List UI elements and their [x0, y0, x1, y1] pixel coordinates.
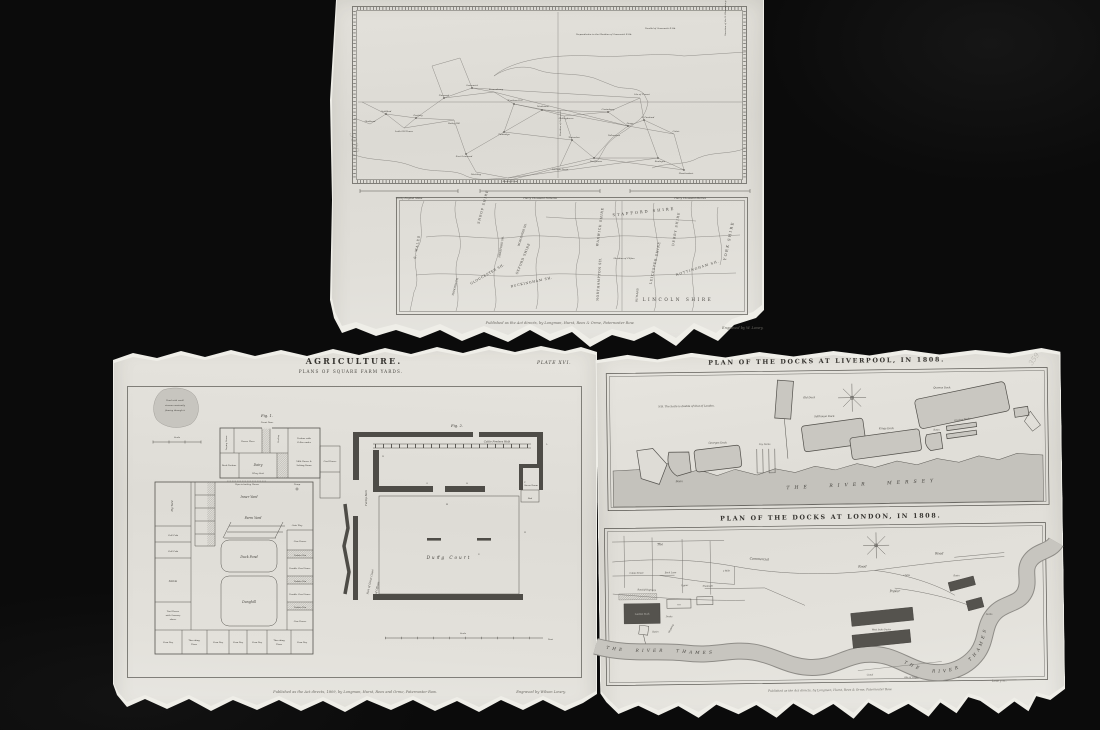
small-dock-shape — [966, 597, 984, 611]
agriculture-sheet: AGRICULTURE. PLANS OF SQUARE FARM YARDS.… — [113, 344, 597, 716]
graving-dock-shape — [946, 430, 976, 439]
place-label: Calais — [673, 130, 681, 133]
corn-bay-label: Corn Bay — [297, 641, 308, 644]
street-label-commercial: Commercial — [750, 556, 770, 561]
west-india-label: West India Docks — [872, 628, 892, 631]
engraver-credit: Engraved by W. Lowry. — [722, 326, 764, 330]
letter-key: G — [426, 482, 428, 485]
street-label-road: Road — [934, 551, 943, 555]
county-map-panel: SHROP SHIRE STAFFORD SHIRE DERBY SHIRE N… — [396, 197, 748, 315]
dry-docks-shape — [757, 449, 775, 473]
fig2-feeding-rails — [373, 444, 531, 448]
place-label: Fairlight Down — [551, 168, 569, 171]
publisher-imprint: Published as the Act directs, by Longman… — [486, 321, 635, 325]
front-door-label: Front Door — [260, 421, 274, 424]
place-label: Canterbury — [602, 108, 615, 111]
great-court-wall — [344, 504, 349, 594]
scale-note: N.B. The Scale is double of that of Lond… — [657, 404, 715, 409]
place-label: Botley Hill — [447, 122, 460, 125]
basin-label: Basin — [952, 574, 960, 577]
street-label-ratcliff: Ratcliff Highway — [636, 588, 656, 591]
parallel-note: Parallel of Greenwich R.Ob. — [644, 27, 676, 30]
pipe-label: Pipe to boiling House — [234, 483, 260, 486]
double-cow-label: Double Cow House — [289, 567, 311, 570]
canal-label: Canal — [867, 673, 874, 676]
planned-dock-outline — [697, 597, 713, 605]
great-court-label: of Offices — [374, 581, 381, 595]
county-label: WORCESTER SH. — [516, 223, 527, 247]
pump-label: Pump — [293, 483, 301, 486]
dung-court-outline — [379, 496, 519, 594]
corn-bay-label: Corn Bay — [233, 641, 244, 644]
perpendicular-note: Perpendicular to the Meridian of Greenwi… — [575, 33, 632, 36]
salthouse-label: Salthouse Dock — [814, 414, 835, 418]
pond-note-line: stream constantly — [165, 404, 186, 407]
basin-label: Basin — [651, 630, 659, 633]
place-label: Hollingbourn — [558, 117, 574, 120]
duck-pond-label: Duck Pond — [239, 555, 257, 559]
trig-place-labels: Hindhead Guildford Leith Hill Tower Dork… — [364, 84, 694, 183]
great-court-label: Part of Great Court — [365, 568, 375, 596]
triangulation-network — [354, 58, 684, 178]
small-dock-shape — [1014, 406, 1029, 417]
room-label: Milk House & — [296, 460, 311, 463]
docks-label: Docks — [665, 615, 674, 618]
county-label: MONMOUTH — [451, 277, 460, 296]
place-label: Leith Hill Tower — [394, 130, 414, 133]
west-india-dock-shape — [851, 607, 914, 626]
place-label: Dover — [626, 122, 635, 125]
plate-subtitle: PLANS OF SQUARE FARM YARDS. — [299, 369, 403, 374]
coastline — [352, 52, 746, 180]
basin-channel — [643, 635, 645, 644]
letter-key: L — [546, 443, 548, 446]
room-label: Cellar under — [297, 441, 312, 444]
room-label: Parlour with — [297, 437, 311, 440]
street-label-the: The — [657, 542, 663, 546]
county-label: WARWICK SHIRE — [595, 207, 604, 247]
front-door-gap — [262, 427, 272, 428]
river-thames-water — [594, 542, 1058, 678]
engraver-credit: Engraved by Wilson Lowry. — [516, 690, 566, 694]
place-label: Dungeness — [589, 160, 603, 163]
court-post — [477, 538, 491, 541]
old-dock-shape — [775, 380, 794, 419]
tool-house-label: above — [170, 618, 177, 621]
fig2-scale-label: Scale — [460, 632, 467, 635]
graving-dock-shape — [946, 422, 976, 431]
feeders-walk-label: Cattle Feeders Walk — [484, 440, 511, 444]
basin-label: Basin — [932, 428, 940, 431]
threshing-label: Floor — [191, 643, 198, 646]
place-label: Tenterden — [568, 136, 580, 139]
fig1-scale-label: Scale — [174, 436, 181, 439]
fig1-scale-bar — [153, 441, 201, 444]
mile-mark: a Mile — [723, 569, 731, 572]
cow-house-label: Cow House — [294, 620, 307, 623]
threshing-label: Floor — [276, 643, 283, 646]
room-label: Back Parlour — [222, 464, 237, 467]
docks-label: Docks — [985, 613, 994, 616]
bed-label: Bed — [527, 497, 533, 500]
gate-way-label: Gate Way — [292, 524, 303, 527]
fig2-feet-label: Feet — [547, 638, 553, 641]
county-label: HEREFORD SH. — [497, 236, 505, 258]
mile-mark: a Mile — [903, 574, 911, 577]
compass-star — [838, 383, 866, 411]
street-label-road: Road — [857, 564, 866, 568]
basin-outline — [639, 625, 649, 635]
publisher-imprint: Published as the Act directs, 1809, by L… — [273, 690, 437, 694]
georges-dock-shape — [694, 445, 742, 472]
street-label-upper: Upper — [681, 584, 689, 587]
place-label: Tunbridge — [498, 133, 510, 136]
triangulation-map-panel: Parallel of Greenwich R.Ob. Perpendicula… — [352, 6, 747, 184]
place-label: Hindhead — [364, 120, 376, 123]
county-label: YORK SHIRE — [723, 221, 735, 262]
place-label: Guildford — [381, 110, 392, 113]
dunghill-label: Dunghill — [241, 600, 256, 604]
place-label: Dorking — [413, 114, 424, 117]
stable-label: Stable — [169, 579, 178, 583]
scale-bar-lines — [360, 189, 750, 193]
kings-dock-label: Kings Dock — [878, 426, 894, 430]
engraver-credit: Lowry sc. — [992, 679, 1007, 683]
street-label-backlane: Back Lane — [664, 571, 677, 574]
place-label: Maidstone — [536, 105, 549, 108]
liverpool-docks-panel: N.B. The Scale is double of that of Lond… — [606, 367, 1050, 511]
place-label: Ditchling — [470, 173, 482, 176]
calf-crib-label: Calf Crib — [168, 534, 179, 537]
county-label: LINCOLN SHIRE — [643, 297, 714, 302]
turnip-barn-label: Turnip Barn — [364, 490, 368, 506]
place-label: Severndroog — [489, 88, 504, 91]
compass-star — [863, 532, 889, 558]
county-boundaries — [410, 201, 740, 311]
county-label: GLOUCESTER SH. — [470, 263, 506, 286]
old-dock-channel — [784, 419, 788, 459]
docks-sheet: 359 PLAN OF THE DOCKS AT LIVERPOOL, IN 1… — [595, 345, 1065, 726]
compass-rays — [863, 532, 889, 558]
survey-sheet: 5129 Parallel of Greenwich R.Ob. Perpend… — [330, 0, 764, 350]
isle-of-dogs-label: Isle of Dogs — [903, 676, 918, 679]
bed-box — [521, 490, 539, 502]
farm-yard-label: Farm Yard — [244, 516, 262, 520]
place-label: Montlambert — [678, 172, 694, 175]
georges-dock-label: Georges Dock — [708, 440, 727, 444]
stairs-hatch — [277, 453, 287, 477]
place-label: Wrotham Hill — [508, 99, 523, 102]
place-label: Isle of Thanet — [633, 93, 649, 96]
threshing-label: Threshing — [188, 639, 200, 642]
tool-house-label: with Granary — [166, 614, 181, 617]
map-inner-border — [357, 11, 743, 180]
fodder-bin-label: Fodder Bin — [294, 554, 307, 557]
county-label: STAFFORD SHIRE — [612, 207, 675, 218]
room-label: Poultry — [277, 434, 280, 443]
plate-title: AGRICULTURE. — [306, 356, 403, 366]
london-docks-panel: London Dock a.a Docks Basin West India D… — [604, 522, 1048, 686]
calf-crib-label: Calf Crib — [168, 550, 179, 553]
place-label: Folkestone — [607, 134, 621, 137]
pig-yard-label: Pig Yard — [170, 500, 174, 512]
west-india-dock-shape — [852, 629, 911, 648]
fig2-label: Fig. 2. — [450, 424, 463, 428]
letter-key: B — [382, 455, 384, 458]
threshing-label: Threshing — [273, 639, 285, 642]
county-label: LEICESTER SHIRE — [649, 241, 662, 284]
county-label: OXFORD SHIRE — [515, 242, 531, 275]
court-post — [427, 538, 441, 541]
place-label: S. Foreland — [642, 116, 655, 119]
county-label: DERBY SHIRE — [671, 211, 681, 246]
pond-note-line: Pond with small — [165, 399, 184, 402]
county-meridian-note: Meridian of Clifton — [612, 257, 635, 260]
meridian-label: Meridian of Greenwich — [559, 110, 562, 137]
map-outer-border — [353, 7, 747, 184]
dung-court-label: Dung Court — [426, 555, 472, 560]
fodder-bin-label: Fodder Bin — [294, 580, 307, 583]
room-label: Dairy — [253, 463, 263, 467]
corn-bay-label: Corn Bay — [163, 641, 174, 644]
compass-rays — [838, 383, 866, 411]
room-label: Whey Sink — [252, 472, 264, 475]
street-label-cable: Cable Street — [629, 572, 643, 575]
pump-symbol — [296, 488, 298, 490]
place-label: Norwood — [438, 94, 450, 97]
inner-yard-label: Inner Yard — [239, 495, 257, 499]
old-dock-label: Old Dock — [803, 395, 816, 399]
farm-plans-panel: Pond with small stream constantly flowin… — [127, 386, 582, 678]
poplar-label: Poplar — [889, 589, 901, 593]
county-label: NORTHAMPTON SH. — [595, 257, 602, 301]
place-label: Greenwich — [466, 84, 479, 87]
letter-key: O — [466, 482, 468, 485]
county-labels: SHROP SHIRE STAFFORD SHIRE DERBY SHIRE N… — [413, 189, 735, 302]
room-label: Coal House — [324, 460, 337, 463]
corn-bay-label: Corn Bay — [213, 641, 224, 644]
room-label: Salting Room — [297, 464, 313, 467]
small-dock-shape — [948, 576, 975, 591]
queens-dock-shape — [914, 381, 1010, 429]
letter-key: E — [478, 553, 480, 556]
letter-key: M — [446, 503, 449, 506]
dry-docks-label: Dry Docks — [758, 443, 771, 446]
queens-dock-label: Queens Dock — [933, 385, 951, 389]
county-label: S. WALES — [413, 235, 421, 259]
basin-shape — [925, 432, 943, 450]
passage-hatch — [262, 428, 269, 452]
houses-strip — [619, 593, 657, 600]
room-label: House Place — [241, 440, 255, 443]
plate-number: PLATE XVI. — [537, 361, 571, 366]
tool-house-label: Tool House — [167, 610, 180, 613]
aa-key: a.a — [677, 603, 681, 606]
fig1-label: Fig. 1. — [260, 414, 273, 418]
corn-bay-label: Corn Bay — [252, 641, 263, 644]
county-label: RUTLAND — [634, 288, 639, 302]
straw-room-label: Straw Room — [524, 484, 539, 487]
place-label: Boulogne — [654, 160, 666, 163]
london-dock-label: London Dock — [635, 613, 650, 616]
place-label: East Grinstead — [455, 155, 473, 158]
double-cow-label: Double Cow House — [289, 593, 311, 596]
county-label: BUCKINGHAM SH. — [510, 276, 553, 289]
fodder-bin-label: Fodder Bin — [294, 606, 307, 609]
pig-stalls-hatch — [207, 482, 214, 545]
fig2-letter-keys: B G O M F L E W H — [382, 443, 548, 558]
street-label-shadwell: Shadwell — [703, 585, 714, 588]
wapping-label: Wapping — [668, 623, 675, 634]
letter-key: H — [524, 531, 526, 534]
cow-house-label: Cow House — [294, 540, 307, 543]
pond-shape — [154, 388, 199, 427]
pond-note-line: flowing through it — [164, 409, 185, 412]
room-label: Drying Room — [225, 435, 228, 451]
basin-label: Basin — [675, 479, 684, 483]
station-dots — [385, 87, 685, 171]
paris-direction-note: Direction of the R. Observatory at Paris — [724, 0, 727, 37]
photo-of-three-antique-map-sheets: 5129 Parallel of Greenwich R.Ob. Perpend… — [0, 0, 1100, 730]
place-label: Beachy Head — [502, 180, 518, 183]
county-label: NOTTINGHAM SH. — [675, 259, 720, 277]
